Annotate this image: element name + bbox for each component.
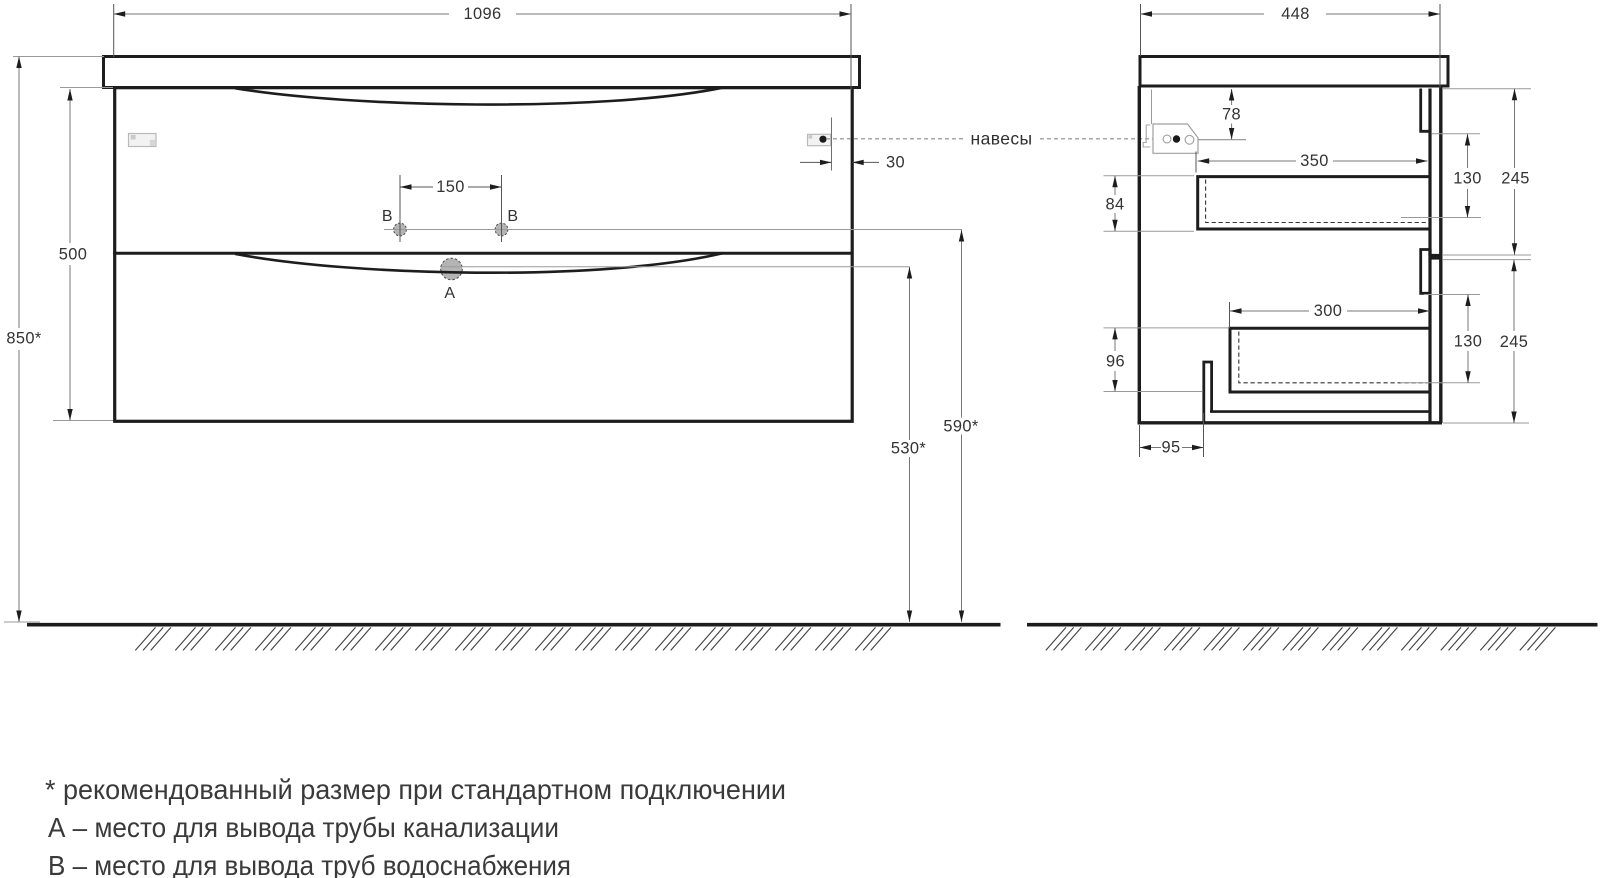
svg-text:B: B (507, 208, 518, 225)
svg-text:850*: 850* (6, 330, 42, 348)
svg-text:В – место для вывода труб водо: В – место для вывода труб водоснабжения (48, 850, 571, 878)
svg-text:96: 96 (1106, 352, 1125, 370)
svg-text:350: 350 (1300, 152, 1329, 170)
svg-text:245: 245 (1500, 333, 1529, 351)
svg-text:А – место для вывода трубы кан: А – место для вывода трубы канализации (48, 812, 559, 843)
svg-text:150: 150 (436, 178, 465, 196)
svg-text:448: 448 (1281, 5, 1310, 23)
svg-text:530*: 530* (891, 440, 927, 458)
svg-text:30: 30 (886, 154, 905, 172)
svg-text:навесы: навесы (971, 129, 1033, 149)
svg-text:1096: 1096 (463, 5, 501, 23)
svg-text:300: 300 (1314, 302, 1343, 320)
svg-text:84: 84 (1105, 195, 1124, 213)
svg-text:590*: 590* (943, 417, 979, 435)
svg-text:78: 78 (1222, 105, 1241, 123)
svg-text:130: 130 (1453, 169, 1482, 187)
svg-text:130: 130 (1454, 332, 1483, 350)
svg-text:245: 245 (1501, 169, 1530, 187)
svg-text:500: 500 (59, 245, 88, 263)
svg-text:B: B (382, 208, 393, 225)
svg-text:* рекомендованный размер при с: * рекомендованный размер при стандартном… (45, 774, 786, 805)
svg-text:A: A (444, 285, 455, 302)
svg-text:95: 95 (1161, 439, 1180, 457)
